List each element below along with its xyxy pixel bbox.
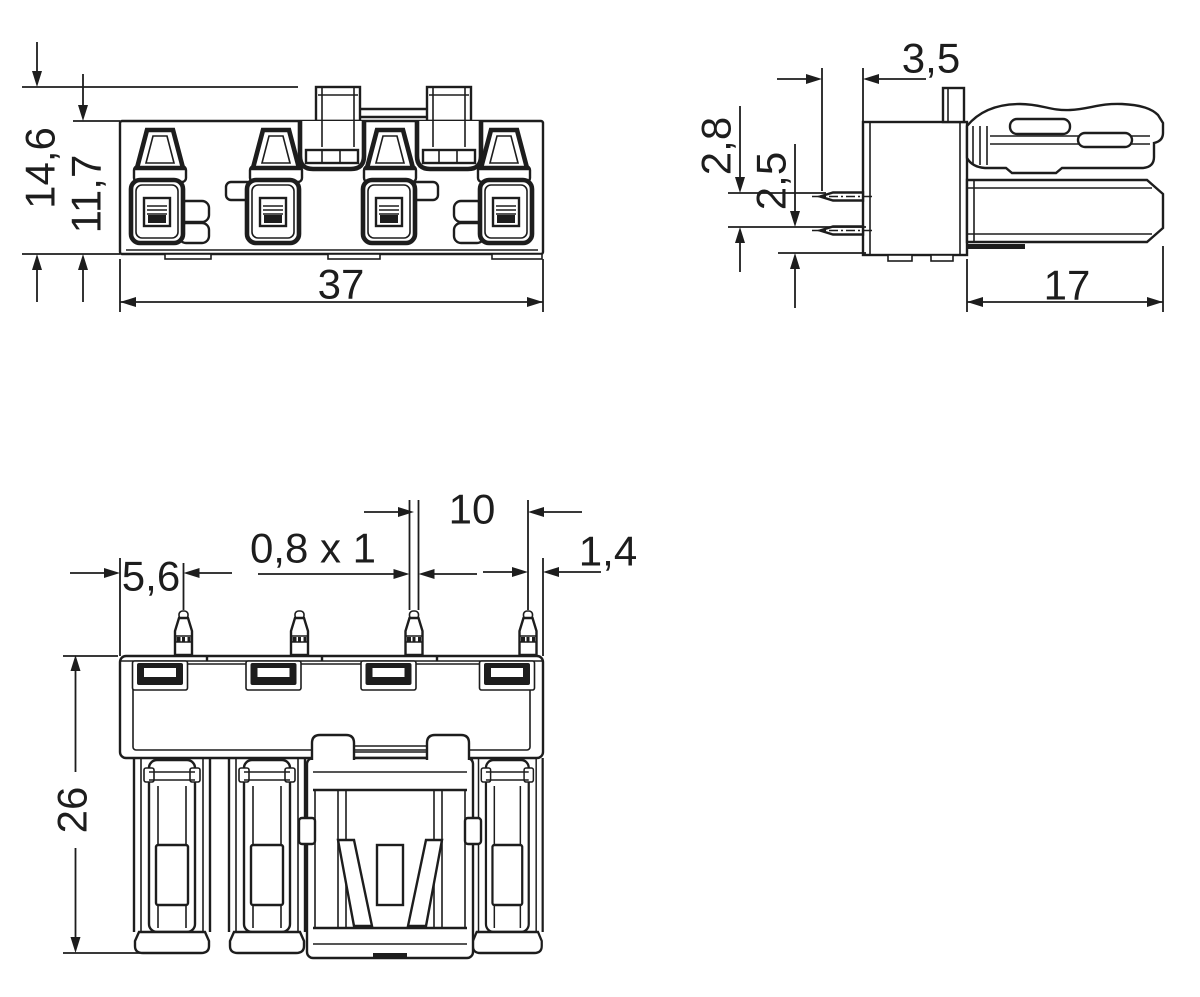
latch-pin: [943, 88, 964, 122]
latch-bar: [360, 109, 427, 117]
latch-tab: [427, 87, 471, 121]
dim-label-top-pin-pitch: 10: [449, 486, 496, 533]
solder-pin: [520, 611, 537, 655]
solder-pin: [406, 611, 423, 655]
dim-top-pin-to-edge: 1,4: [483, 528, 637, 578]
contact-cavity: [247, 180, 299, 243]
solder-pin: [175, 611, 192, 655]
latch-arm: [472, 758, 543, 953]
latch-hook: [417, 121, 481, 169]
dim-label-side-pin-offset-2: 2,5: [748, 152, 795, 210]
dim-front-width: 37: [120, 259, 543, 312]
top-view: 5,6 0,8 x 1 10 1,4: [49, 486, 638, 959]
latch-assembly: [967, 104, 1163, 173]
dim-label-front-height-body: 11,7: [63, 155, 110, 234]
dim-label-top-pin-to-edge: 1,4: [579, 528, 637, 575]
central-latch-block: [299, 735, 481, 959]
latch-window: [480, 661, 535, 690]
dim-label-top-edge-to-pin: 5,6: [122, 553, 180, 600]
latch-window: [246, 661, 301, 690]
dim-label-top-overall-height: 26: [49, 787, 96, 834]
plug-body: [967, 180, 1163, 249]
contact-cavity: [480, 180, 532, 243]
dim-top-pin-pitch: 10: [364, 486, 582, 533]
dim-label-top-pin-cross-section: 0,8 x 1: [250, 525, 376, 572]
contact-cavity: [363, 180, 415, 243]
dim-side-depth: 17: [967, 246, 1163, 312]
dim-label-side-pin-offset-1: 2,8: [693, 117, 740, 175]
latch-window: [133, 661, 188, 690]
latch-arm: [134, 758, 210, 953]
dim-label-front-width: 37: [318, 261, 365, 308]
dim-top-pin-cross-section: 0,8 x 1: [250, 525, 477, 580]
solder-pin: [291, 611, 308, 655]
latch-arm: [229, 758, 305, 953]
technical-drawing-canvas: 14,6 11,7 37: [0, 0, 1200, 997]
dim-label-front-height-overall: 14,6: [17, 127, 64, 209]
dim-top-edge-to-pin: 5,6: [70, 553, 232, 600]
dim-label-side-pin-protrusion: 3,5: [902, 35, 960, 82]
side-housing-body: [863, 122, 967, 261]
side-view: 3,5 2,8 2,5: [693, 35, 1164, 313]
dim-label-side-depth: 17: [1044, 262, 1091, 309]
contact-cavity: [131, 180, 183, 243]
latch-tab: [316, 87, 360, 121]
latch-hook: [300, 121, 364, 169]
latch-window: [361, 661, 416, 690]
front-view: 14,6 11,7 37: [17, 42, 544, 312]
